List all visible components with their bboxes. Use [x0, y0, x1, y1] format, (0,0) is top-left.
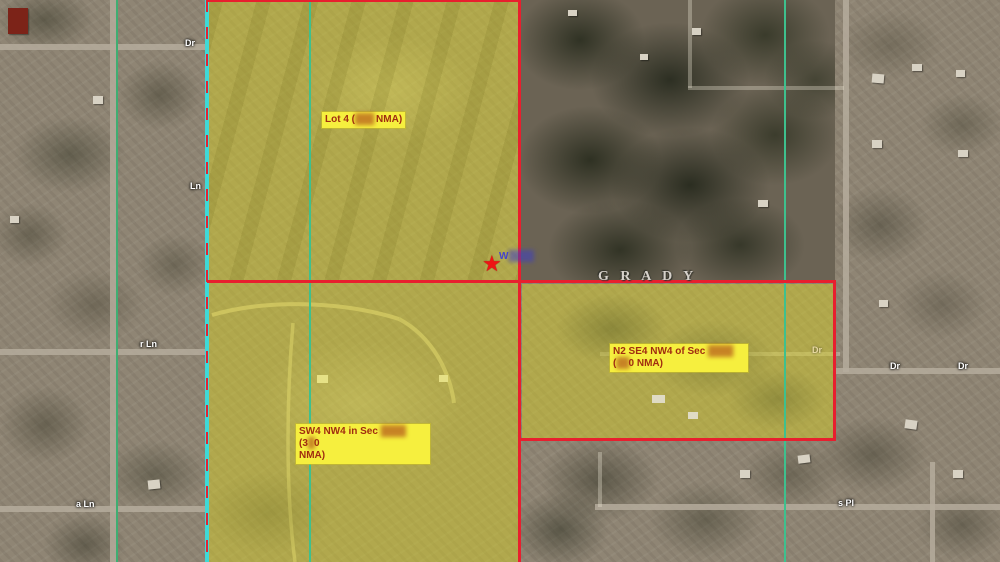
- label-text: (3: [299, 438, 308, 449]
- road-vertical-bottom-right: [930, 462, 935, 562]
- label-text: 0 NMA): [629, 358, 663, 369]
- building: [10, 216, 19, 223]
- road-top-left: [0, 44, 206, 50]
- building: [93, 96, 103, 104]
- owner-annotation: W████: [499, 251, 533, 262]
- road-label-a-ln: a Ln: [76, 499, 95, 509]
- boundary-red-top: [207, 0, 520, 2]
- label-text: 0: [314, 438, 320, 449]
- boundary-red-horizontal: [207, 280, 836, 283]
- map-viewport[interactable]: Lot 4 (███ NMA) SW4 NW4 in Sec ████ (3█0…: [0, 0, 1000, 562]
- building: [652, 395, 665, 403]
- road-bottom-right: [595, 504, 1000, 510]
- building: [688, 412, 698, 419]
- star-marker-icon[interactable]: ★: [482, 253, 502, 275]
- redacted-text: █: [308, 438, 314, 449]
- road-label-dr-3: Dr: [890, 361, 900, 371]
- building: [879, 300, 888, 307]
- label-text: NMA): [373, 114, 402, 125]
- parcel-label-lot4: Lot 4 (███ NMA): [322, 112, 405, 128]
- parcel-label-sw4-nw4: SW4 NW4 in Sec ████ (3█0 NMA): [296, 424, 430, 464]
- building: [692, 28, 701, 35]
- label-text: SW4 NW4 in Sec: [299, 426, 381, 437]
- building: [740, 470, 750, 478]
- road-label-ln: Ln: [190, 181, 201, 191]
- road-label-dr-1: Dr: [185, 38, 195, 48]
- driveway-top-right-v: [688, 0, 692, 88]
- building: [758, 200, 768, 207]
- building: [953, 470, 963, 478]
- boundary-red-parcelC-south: [520, 438, 836, 441]
- road-label-dr-4: Dr: [958, 361, 968, 371]
- building: [956, 70, 965, 77]
- label-text: N2 SE4 NW4 of Sec: [613, 346, 708, 357]
- parcel-sw4-nw4[interactable]: [209, 283, 519, 562]
- parcel-lot4[interactable]: [209, 0, 519, 280]
- county-label: G R A D Y: [598, 269, 697, 285]
- driveway-top-right-h: [688, 86, 844, 90]
- building: [148, 479, 161, 489]
- section-line-west: [116, 0, 118, 562]
- road-label-s-pl: s Pl: [838, 498, 854, 508]
- road-vertical-right: [843, 0, 849, 372]
- label-text: Lot 4 (: [325, 114, 355, 125]
- road-label-r-ln: r Ln: [140, 339, 157, 349]
- building: [872, 73, 885, 83]
- redacted-text: ████: [708, 346, 732, 357]
- road-label-dr-2: Dr: [812, 345, 822, 355]
- forest-area: [520, 0, 835, 281]
- building: [640, 54, 648, 60]
- redacted-text: ██: [616, 358, 628, 369]
- building: [798, 454, 811, 463]
- redacted-text: ████: [508, 251, 532, 262]
- road-bottom-left: [0, 506, 206, 512]
- building: [872, 140, 882, 148]
- label-text: NMA): [299, 450, 325, 461]
- road-mid-left: [0, 349, 206, 355]
- building: [8, 8, 28, 34]
- parcel-label-n2-se4-nw4: N2 SE4 NW4 of Sec ████ (██0 NMA): [610, 344, 748, 372]
- redacted-text: ████: [381, 426, 405, 437]
- driveway-bottom-center: [598, 452, 602, 507]
- road-right-dr: [836, 368, 1000, 374]
- building: [568, 10, 577, 16]
- building: [904, 419, 917, 430]
- redacted-text: ███: [355, 114, 373, 125]
- boundary-red-parcelC-east: [833, 281, 836, 441]
- building: [912, 64, 922, 71]
- building: [958, 150, 968, 157]
